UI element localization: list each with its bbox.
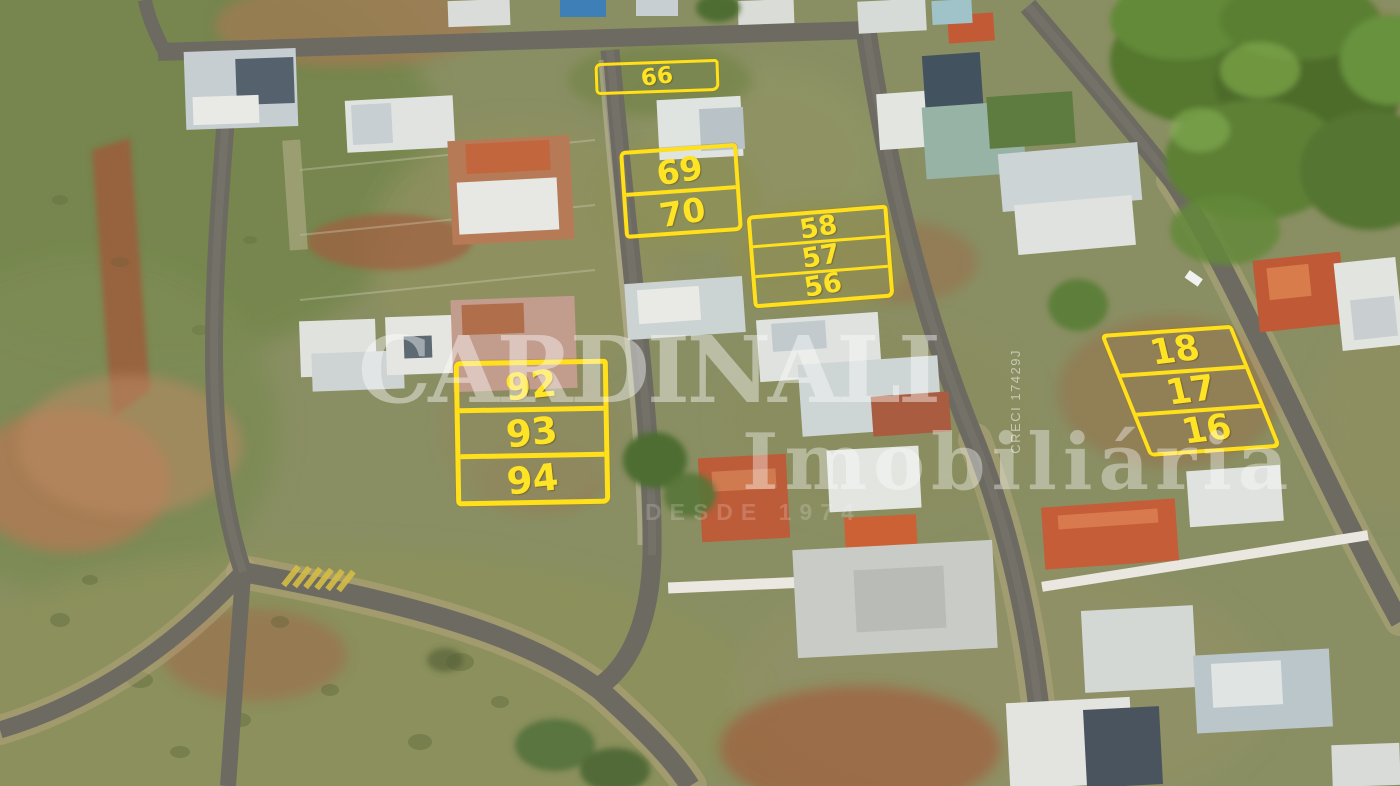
lot-number: 16 bbox=[1179, 410, 1235, 450]
lot-group-92-93-94: 92 93 94 bbox=[454, 359, 611, 507]
lot-number: 93 bbox=[504, 411, 559, 453]
lot-number: 17 bbox=[1163, 371, 1219, 411]
aerial-photo-frame: 66 69 70 58 57 56 92 93 94 1 bbox=[0, 0, 1400, 786]
lot-group-69-70: 69 70 bbox=[619, 143, 743, 239]
lot-number: 92 bbox=[504, 365, 559, 407]
lot-row: 70 bbox=[626, 185, 739, 235]
lot-number: 18 bbox=[1147, 331, 1203, 371]
lot-number: 70 bbox=[657, 192, 708, 232]
lot-number: 94 bbox=[505, 458, 560, 500]
lot-row: 94 bbox=[460, 452, 605, 501]
lot-row: 16 bbox=[1136, 404, 1276, 452]
lot-group-66: 66 bbox=[594, 59, 719, 95]
lot-number: 56 bbox=[802, 269, 844, 302]
lot-number: 69 bbox=[654, 150, 705, 190]
lot-row: 93 bbox=[460, 405, 605, 454]
lot-row: 92 bbox=[459, 364, 604, 408]
lot-row: 66 bbox=[598, 62, 717, 92]
lot-number: 66 bbox=[640, 64, 675, 91]
lot-group-58-57-56: 58 57 56 bbox=[747, 205, 895, 309]
